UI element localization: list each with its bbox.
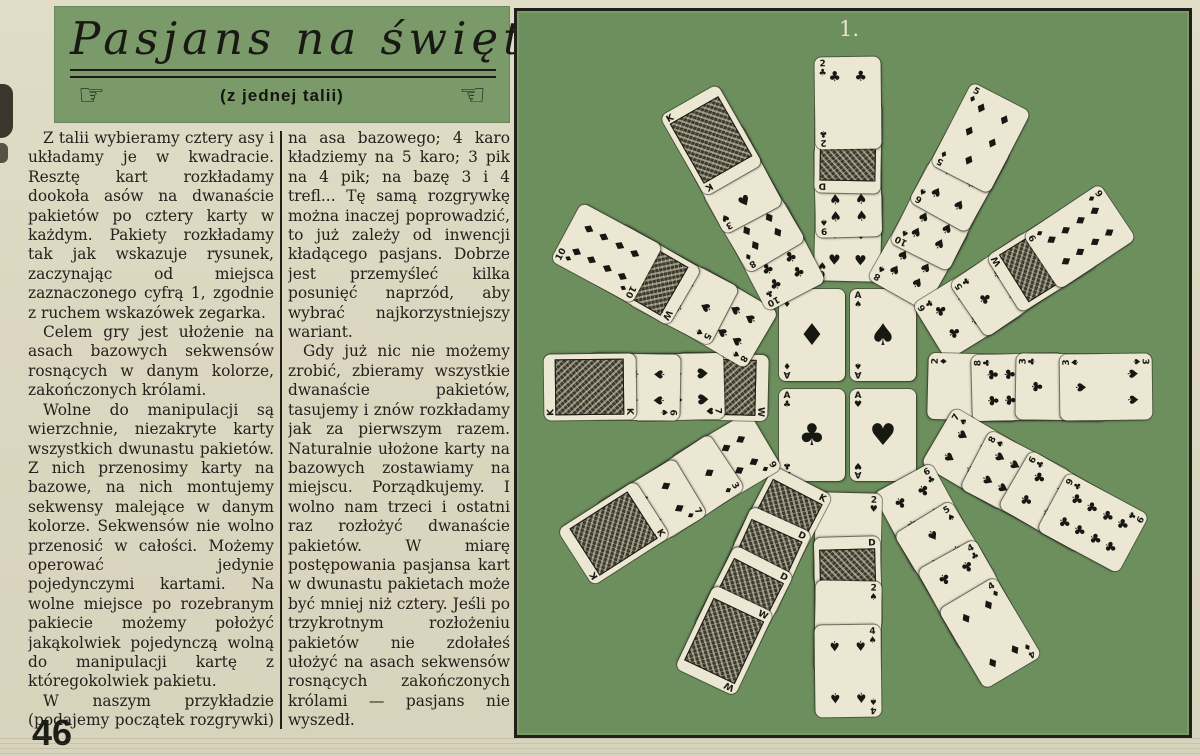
- playing-card-A♠: A♠A♠♠: [850, 289, 916, 381]
- playing-card-4♠: 4♠4♠♠♠♠♠: [814, 625, 881, 718]
- ace-pip: ♦: [779, 289, 845, 381]
- pip-grid: ♣♣: [822, 70, 875, 137]
- pointing-hand-left-icon: ☜: [459, 81, 486, 111]
- court-figure-art: [569, 491, 657, 575]
- paragraph: Z talii wybieramy cztery asy i układamy …: [28, 129, 274, 323]
- paragraph: Gdy już nic nie możemy zrobić, zbieramy …: [288, 342, 510, 729]
- court-figure-art: [684, 598, 764, 684]
- article-subtitle: (z jednej talii): [220, 86, 344, 106]
- page-number: 46: [32, 712, 72, 754]
- paragraph: Wolne do manipulacji są wierzchnie, niez…: [28, 401, 274, 692]
- ace-pip: ♣: [779, 389, 845, 481]
- scan-artifact: [0, 143, 8, 163]
- ace-pip: ♥: [850, 389, 916, 481]
- center-aces: A♦A♦♦A♠A♠♠A♣A♣♣A♥A♥♥: [779, 289, 917, 485]
- magazine-page: Pasjans na święta ☞ (z jednej talii) ☜ Z…: [0, 0, 1200, 756]
- article-header: Pasjans na święta ☞ (z jednej talii) ☜: [54, 6, 510, 123]
- double-rule: [70, 69, 496, 78]
- article-body: Z talii wybieramy cztery asy i układamy …: [28, 129, 510, 729]
- article-title: Pasjans na święta: [54, 6, 510, 65]
- pip-grid: ♦♦♦♦♦: [942, 97, 1018, 179]
- paragraph: Celem gry jest ułożenie na asach bazowyc…: [28, 323, 274, 401]
- card-packet-1: 6♥6♥♥♥♥♥♥♥9♠9♠♠♠♠♠♠♠♠♠D♦D♦2♣2♣♣♣: [815, 57, 881, 281]
- court-figure-art: [555, 359, 625, 416]
- card-packet-10: W♥W♥7♥7♥♥♥♥♥♥♥6♠6♠♠♠♠♠♠♠K♦K♦: [544, 354, 768, 420]
- court-figure-art: [670, 96, 753, 184]
- card-table-felt: 1. A♦A♦♦A♠A♠♠A♣A♣♣A♥A♥♥ 6♥6♥♥♥♥♥♥♥9♠9♠♠♠…: [517, 11, 1189, 735]
- playing-card-A♦: A♦A♦♦: [779, 289, 845, 381]
- pip-grid: ♦♦♦♦♦♦♦♦: [565, 215, 648, 292]
- pip-grid: ♦♦♦♦: [951, 591, 1029, 674]
- paragraph: na asa bazowego; 4 karo kładziemy na 5 k…: [288, 129, 510, 342]
- pointing-hand-right-icon: ☞: [78, 81, 105, 111]
- text-column-2: na asa bazowego; 4 karo kładziemy na 5 k…: [288, 129, 510, 729]
- card-packet-4: 2♦2♦♦♦8♣8♣♣♣♣♣♣♣♣♣3♣3♣♣♣♣3♠3♠♠♠♠: [928, 354, 1152, 420]
- scan-artifact: [0, 84, 13, 138]
- cards-illustration-panel: 1. A♦A♦♦A♠A♠♠A♣A♣♣A♥A♥♥ 6♥6♥♥♥♥♥♥♥9♠9♠♠♠…: [514, 8, 1192, 738]
- ace-pip: ♠: [850, 289, 916, 381]
- playing-card-2♣: 2♣2♣♣♣: [814, 57, 881, 150]
- subtitle-row: ☞ (z jednej talii) ☜: [54, 78, 510, 111]
- playing-card-3♠: 3♠3♠♠♠♠: [1060, 353, 1153, 420]
- face-card-K♦: K♦K♦: [544, 353, 637, 420]
- pip-grid: ♦♦♦♦♦♦♦♦: [1038, 197, 1122, 277]
- playing-card-A♣: A♣A♣♣: [779, 389, 845, 481]
- start-marker: 1.: [837, 17, 861, 41]
- playing-card-A♥: A♥A♥♥: [850, 389, 916, 481]
- pip-grid: ♣♣♣♣♣♣♣♣: [1052, 484, 1135, 561]
- text-column-1: Z talii wybieramy cztery asy i układamy …: [28, 129, 274, 729]
- column-divider: [280, 131, 282, 729]
- pip-grid: ♠♠♠: [1073, 361, 1140, 414]
- pip-grid: ♠♠♠♠: [822, 638, 875, 705]
- card-packet-7: 2♥2♥♥♥D♦D♦2♠2♠♠♠4♠4♠♠♠♠♠: [815, 493, 881, 717]
